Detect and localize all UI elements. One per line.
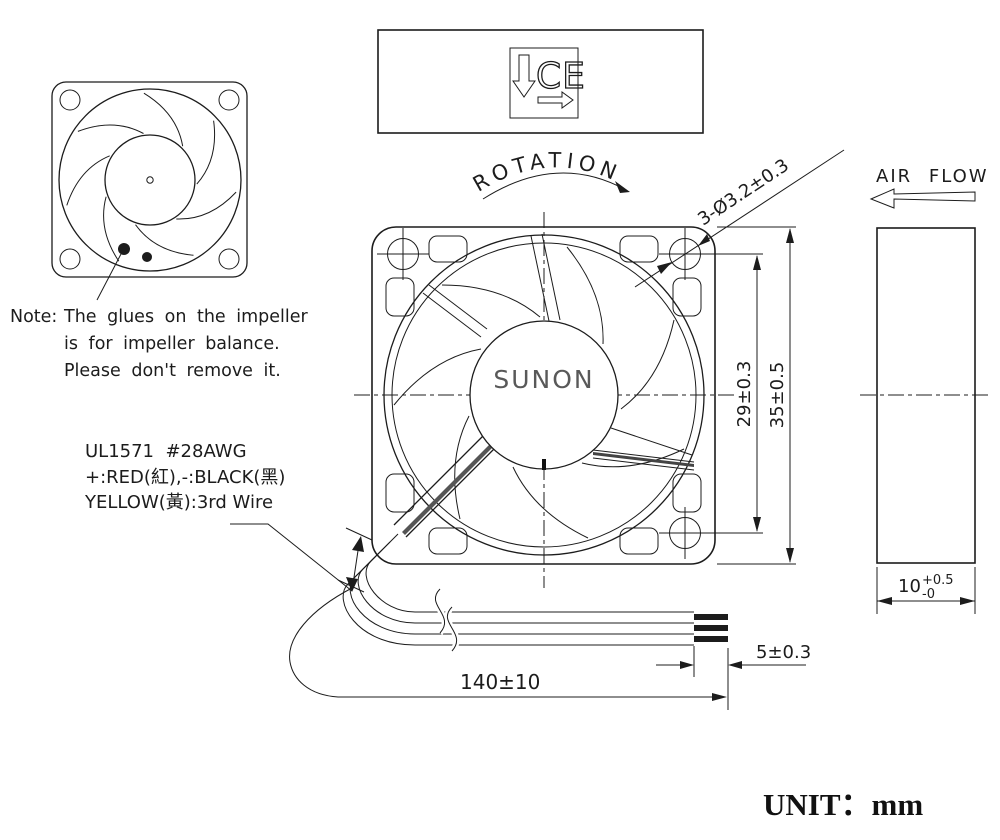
wire-leader-line xyxy=(230,524,352,591)
arrowhead xyxy=(698,234,710,246)
note-prefix: Note: xyxy=(10,307,57,327)
wire-bundle-arrow xyxy=(338,528,372,592)
side-view: 10 +0.5 -0 xyxy=(860,228,992,614)
compliance-label-box: CE xyxy=(378,30,703,133)
wire-spec-line-2: +:RED(紅),-:BLACK(黑) xyxy=(85,467,285,488)
wire-tip xyxy=(694,636,728,642)
strip-length-label: 5±0.3 xyxy=(756,642,811,663)
unit-label: UNIT：mm xyxy=(763,787,923,822)
air-flow-label: AIR FLOW xyxy=(876,166,989,187)
lead-wires xyxy=(343,534,728,651)
hub-center xyxy=(147,177,153,183)
hole-pitch-label: 29±0.3 xyxy=(734,361,755,428)
drawing-canvas: The glues on the impeller Note: The glue… xyxy=(0,0,1000,840)
wire-spec: UL1571 #28AWG +:RED(紅),-:BLACK(黑) YELLOW… xyxy=(84,441,372,592)
wire-tip xyxy=(694,614,728,620)
note: The glues on the impeller Note: The glue… xyxy=(10,307,309,381)
small-fan-frame xyxy=(52,82,247,277)
wire-spec-line-3: YELLOW(黃):3rd Wire xyxy=(84,492,273,513)
dimension-thickness: 10 +0.5 -0 xyxy=(877,567,975,614)
lead-length-label: 140±10 xyxy=(460,670,540,694)
thickness-tol-upper: +0.5 xyxy=(922,573,954,588)
note-line-2: is for impeller balance. xyxy=(64,334,280,354)
dimension-hole-pitch: 29±0.3 xyxy=(702,254,763,533)
hub-notch xyxy=(542,459,546,470)
arrowhead xyxy=(712,693,727,701)
impeller-hub xyxy=(105,135,195,225)
note-line-1: The glues on the impeller xyxy=(63,307,309,327)
arrowhead xyxy=(657,262,672,274)
mounting-hole xyxy=(60,90,80,110)
ce-mark-icon: CE xyxy=(536,56,586,97)
mounting-hole xyxy=(60,249,80,269)
frame-size-label: 35±0.5 xyxy=(767,362,788,429)
thickness-value: 10 xyxy=(898,576,921,597)
wire-bundle xyxy=(343,534,694,645)
wire-tip xyxy=(694,625,728,631)
thickness-tol-lower: -0 xyxy=(922,587,935,602)
balance-glue-dot xyxy=(142,252,152,262)
air-flow-arrow-icon xyxy=(871,189,975,208)
wire-spec-line-1: UL1571 #28AWG xyxy=(85,441,247,462)
rotation-arrow-icon xyxy=(615,181,630,193)
small-fan-view xyxy=(52,82,247,300)
main-fan-view: SUNON xyxy=(354,212,737,588)
mounting-hole xyxy=(219,90,239,110)
mounting-hole xyxy=(219,249,239,269)
dimension-strip-length: 5±0.3 xyxy=(656,642,811,710)
impeller-rim xyxy=(59,89,241,271)
balance-glue-dot xyxy=(118,243,130,255)
brand-label: SUNON xyxy=(493,365,594,394)
hole-dimension-label: 3-Ø3.2±0.3 xyxy=(694,155,793,230)
air-flow-indicator: AIR FLOW xyxy=(871,166,989,208)
note-line-3: Please don't remove it. xyxy=(64,361,281,381)
down-arrow-icon xyxy=(513,55,535,97)
fan-mechanical-drawing: The glues on the impeller Note: The glue… xyxy=(0,0,1000,840)
dimension-mounting-holes: 3-Ø3.2±0.3 xyxy=(635,150,844,287)
hub xyxy=(470,321,618,469)
